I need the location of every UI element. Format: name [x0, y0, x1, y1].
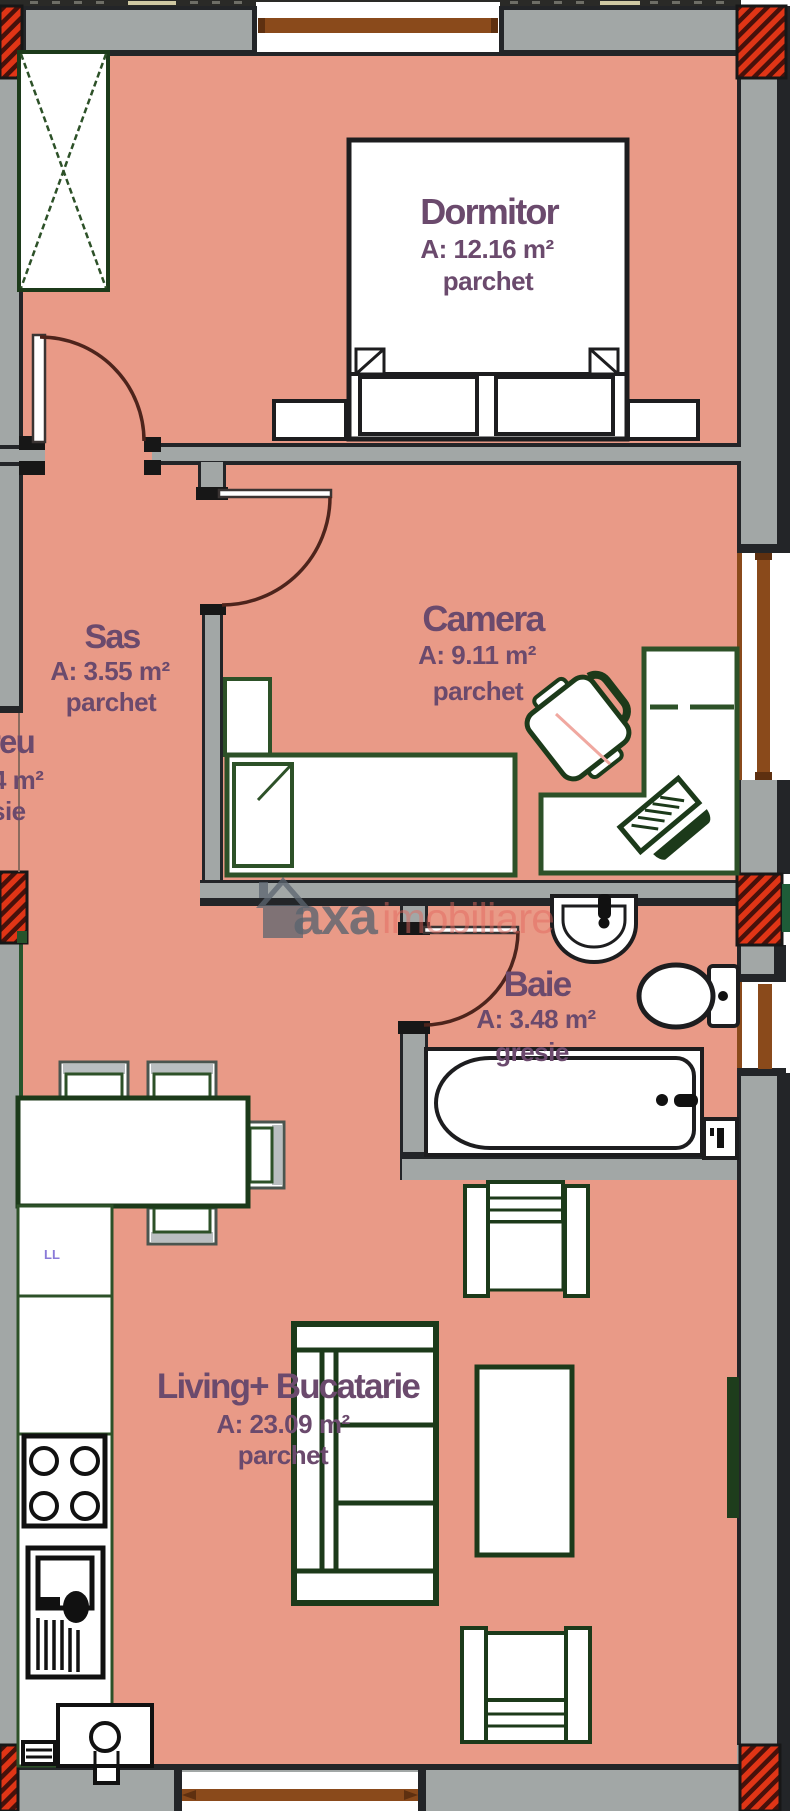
svg-text:A: 3.55 m²: A: 3.55 m²: [50, 656, 170, 686]
svg-text:parchet: parchet: [238, 1440, 329, 1470]
svg-text:A: 23.09 m²: A: 23.09 m²: [216, 1409, 350, 1439]
svg-text:4 m²: 4 m²: [0, 765, 44, 795]
svg-text:Baie: Baie: [504, 965, 572, 1004]
svg-text:sie: sie: [0, 796, 26, 826]
svg-text:A: 9.11 m²: A: 9.11 m²: [418, 640, 537, 670]
svg-text:LL: LL: [44, 1247, 60, 1262]
svg-text:Camera: Camera: [422, 598, 546, 639]
svg-text:A: 12.16 m²: A: 12.16 m²: [420, 234, 554, 264]
svg-text:parchet: parchet: [443, 266, 534, 296]
svg-text:A: 3.48 m²: A: 3.48 m²: [476, 1004, 596, 1034]
svg-text:parchet: parchet: [433, 676, 524, 706]
svg-text:imobiliare: imobiliare: [382, 896, 554, 943]
svg-text:reu: reu: [0, 723, 34, 760]
svg-text:Sas: Sas: [84, 618, 140, 656]
svg-text:axa: axa: [293, 888, 379, 946]
svg-text:gresie: gresie: [495, 1037, 569, 1067]
svg-text:Dormitor: Dormitor: [420, 191, 559, 232]
svg-text:parchet: parchet: [66, 687, 157, 717]
svg-text:Living+ Bucatarie: Living+ Bucatarie: [157, 1367, 420, 1406]
